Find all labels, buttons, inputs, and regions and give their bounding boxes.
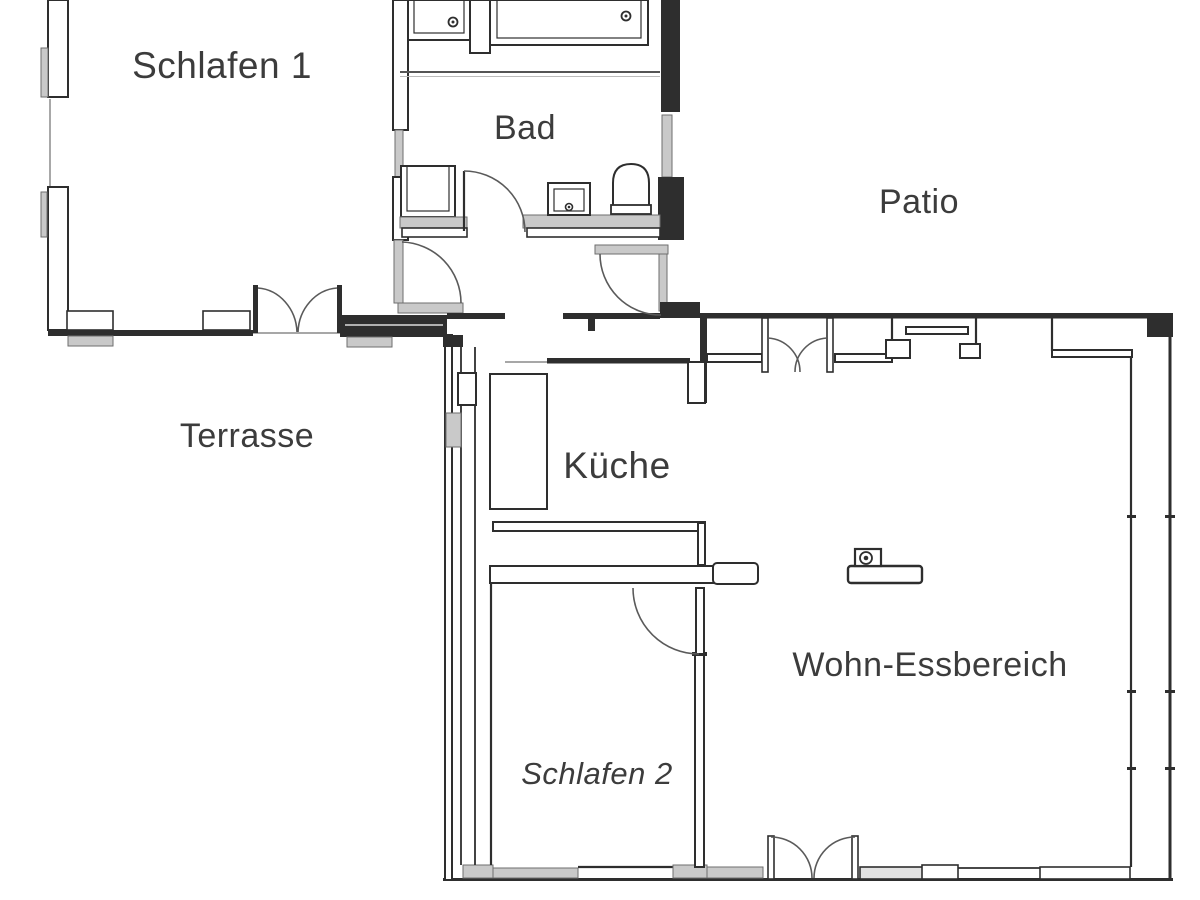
west-wall-lower (443, 335, 476, 880)
schlafen1-french-door (253, 285, 342, 333)
bad-door (464, 171, 525, 232)
corridor-door-east (595, 245, 668, 315)
fireplace-niche-symbol (886, 318, 980, 358)
room-label-kueche: Küche (563, 445, 670, 486)
sideboard-symbol (848, 549, 922, 583)
room-label-schlafen2: Schlafen 2 (521, 756, 673, 791)
room-label-patio: Patio (879, 183, 959, 221)
shower-square-symbol (400, 166, 467, 237)
room-label-schlafen1: Schlafen 1 (132, 45, 312, 86)
room-label-terrasse: Terrasse (180, 417, 314, 455)
floor-plan: Schlafen 1 Bad Patio Terrasse Küche Wohn… (0, 0, 1200, 900)
schlafen2-door (633, 588, 704, 654)
wohn-north-french-door (762, 318, 833, 372)
corridor-door-west (402, 242, 461, 303)
wohn-east-wall (1127, 337, 1175, 881)
wohn-south-french-door (768, 836, 858, 879)
bathtub-symbol (490, 0, 648, 45)
toilet-symbol (611, 164, 651, 214)
shower-stall-symbol (408, 0, 470, 40)
room-label-bad: Bad (494, 109, 556, 147)
vanity-counter-symbol (523, 215, 660, 237)
south-wall (443, 865, 1173, 880)
schlafen2-walls (491, 583, 707, 867)
room-label-wohn: Wohn-Essbereich (792, 646, 1067, 684)
sink-symbol (548, 183, 590, 215)
kitchen-divider-wall (490, 563, 758, 584)
